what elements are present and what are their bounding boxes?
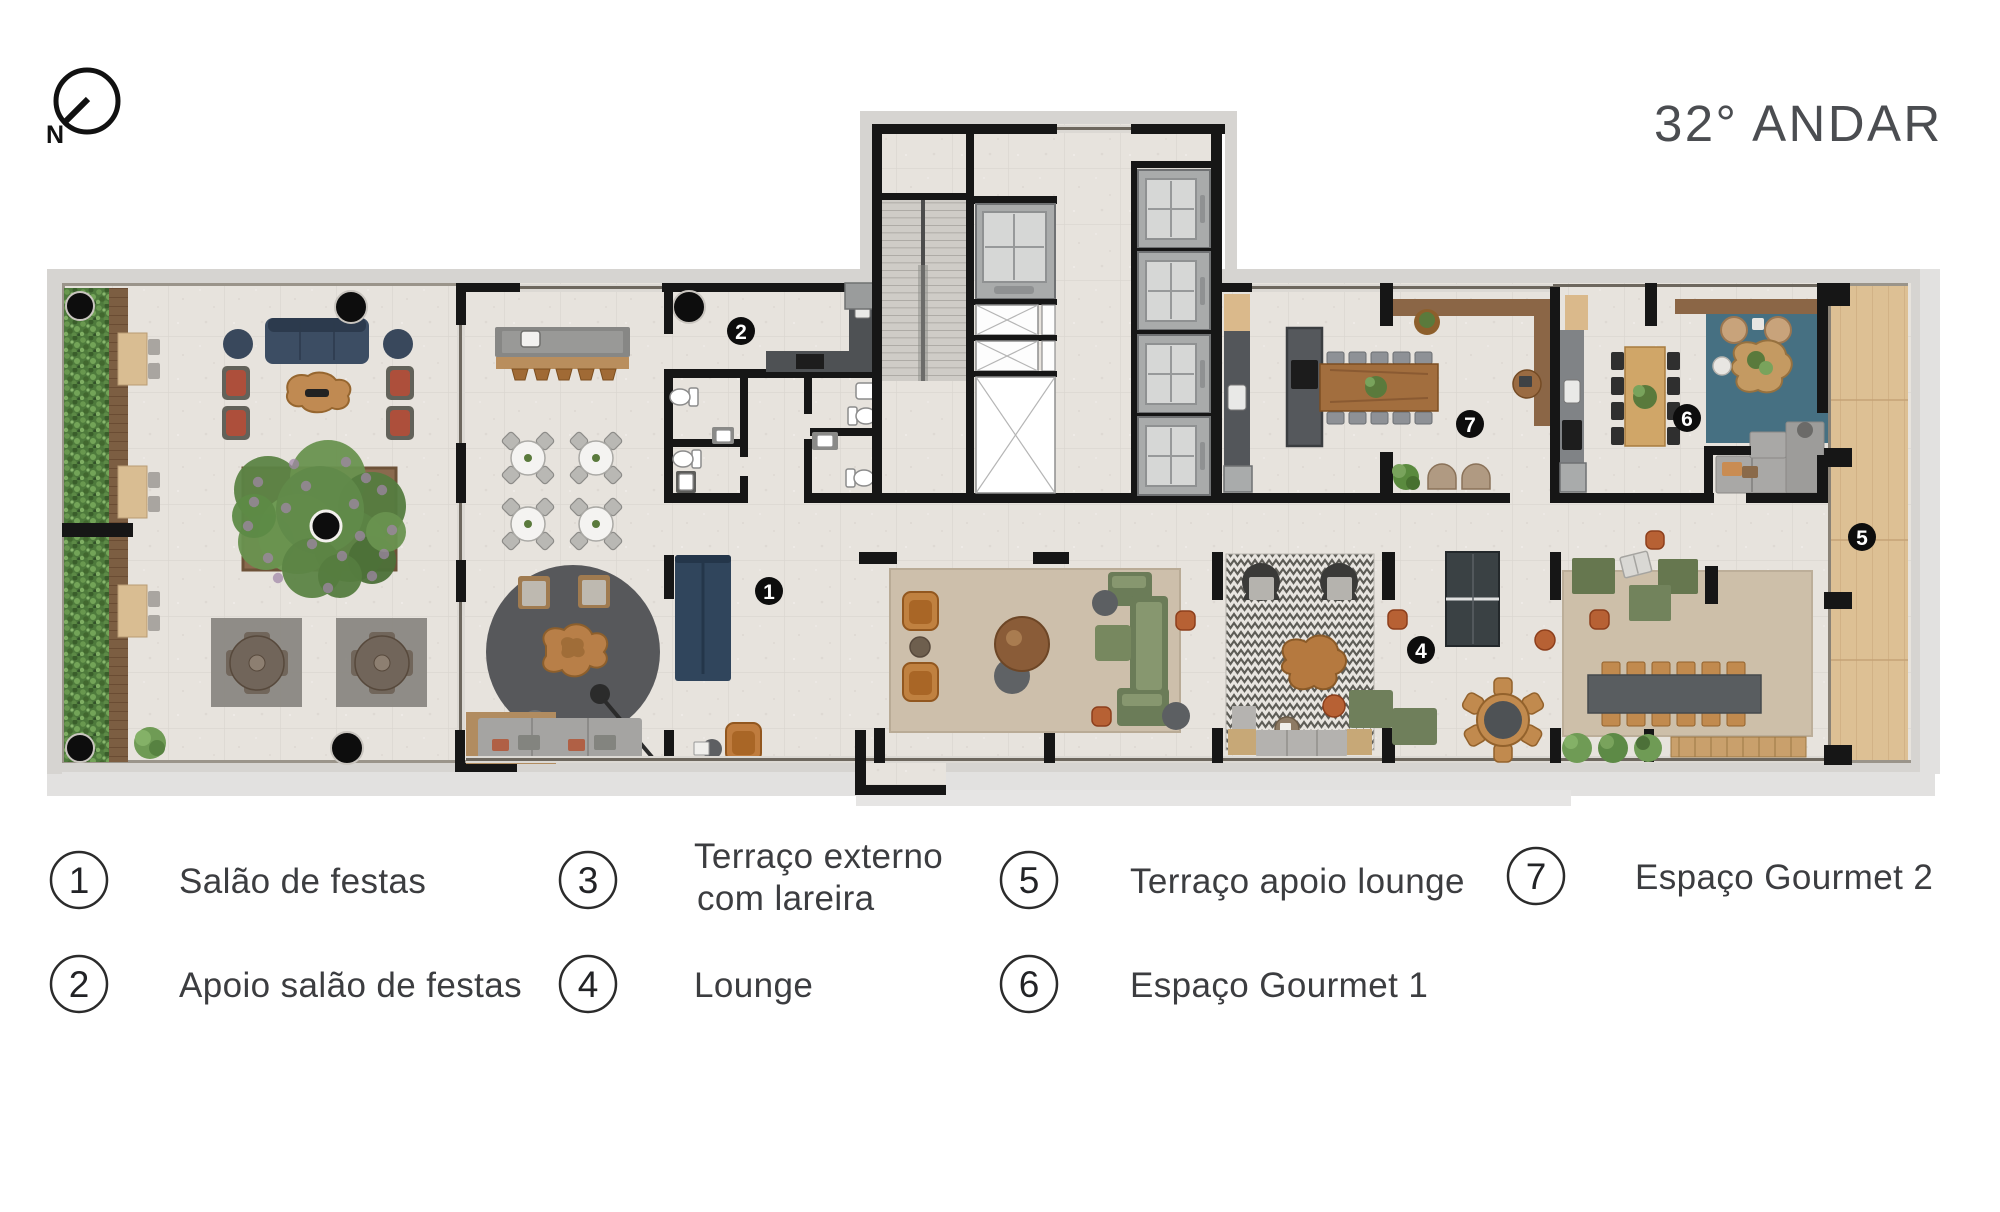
svg-text:Salão de festas: Salão de festas [179,862,426,901]
svg-text:7: 7 [1526,856,1547,897]
svg-text:com lareira: com lareira [697,879,875,918]
svg-text:N: N [46,121,64,149]
svg-text:4: 4 [1415,640,1427,663]
svg-text:Espaço Gourmet 1: Espaço Gourmet 1 [1130,966,1428,1005]
svg-text:5: 5 [1019,860,1040,901]
svg-text:2: 2 [69,964,90,1005]
svg-text:5: 5 [1856,527,1868,550]
svg-text:Terraço externo: Terraço externo [694,837,943,876]
svg-text:1: 1 [69,860,90,901]
svg-text:4: 4 [578,964,599,1005]
svg-text:Lounge: Lounge [694,966,813,1005]
svg-text:Espaço Gourmet 2: Espaço Gourmet 2 [1635,858,1933,897]
svg-text:32° ANDAR: 32° ANDAR [1654,95,1943,152]
svg-text:Terraço apoio lounge: Terraço apoio lounge [1130,862,1465,901]
svg-text:7: 7 [1464,414,1476,437]
svg-text:1: 1 [763,581,775,604]
svg-text:Apoio salão de festas: Apoio salão de festas [179,966,522,1005]
svg-text:6: 6 [1681,408,1693,431]
svg-text:3: 3 [578,860,599,901]
svg-text:2: 2 [735,321,747,344]
svg-text:6: 6 [1019,964,1040,1005]
